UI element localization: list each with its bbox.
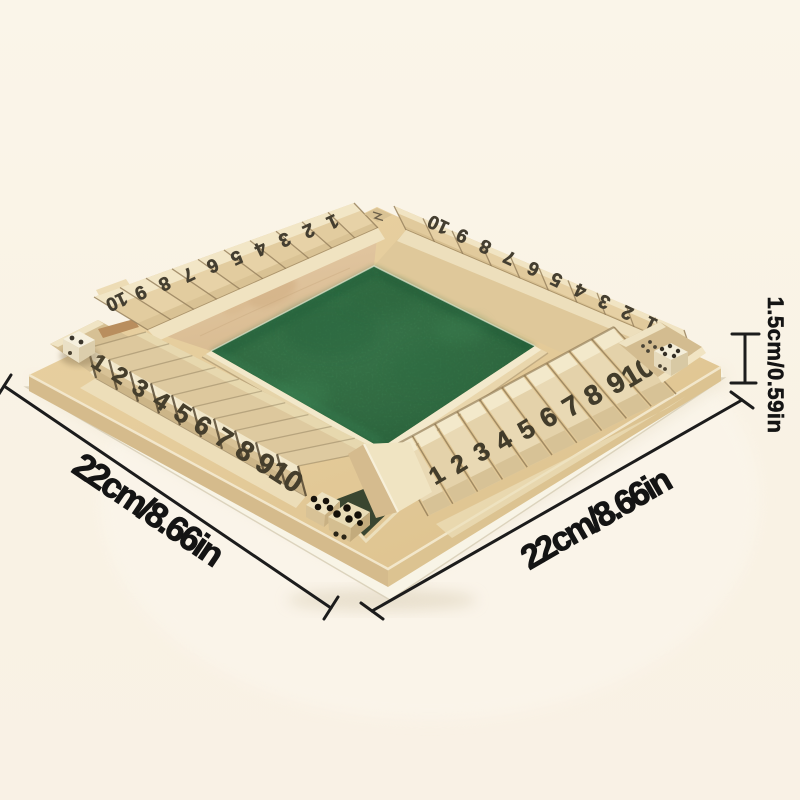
svg-text:1.5cm/0.59in: 1.5cm/0.59in (763, 297, 788, 434)
